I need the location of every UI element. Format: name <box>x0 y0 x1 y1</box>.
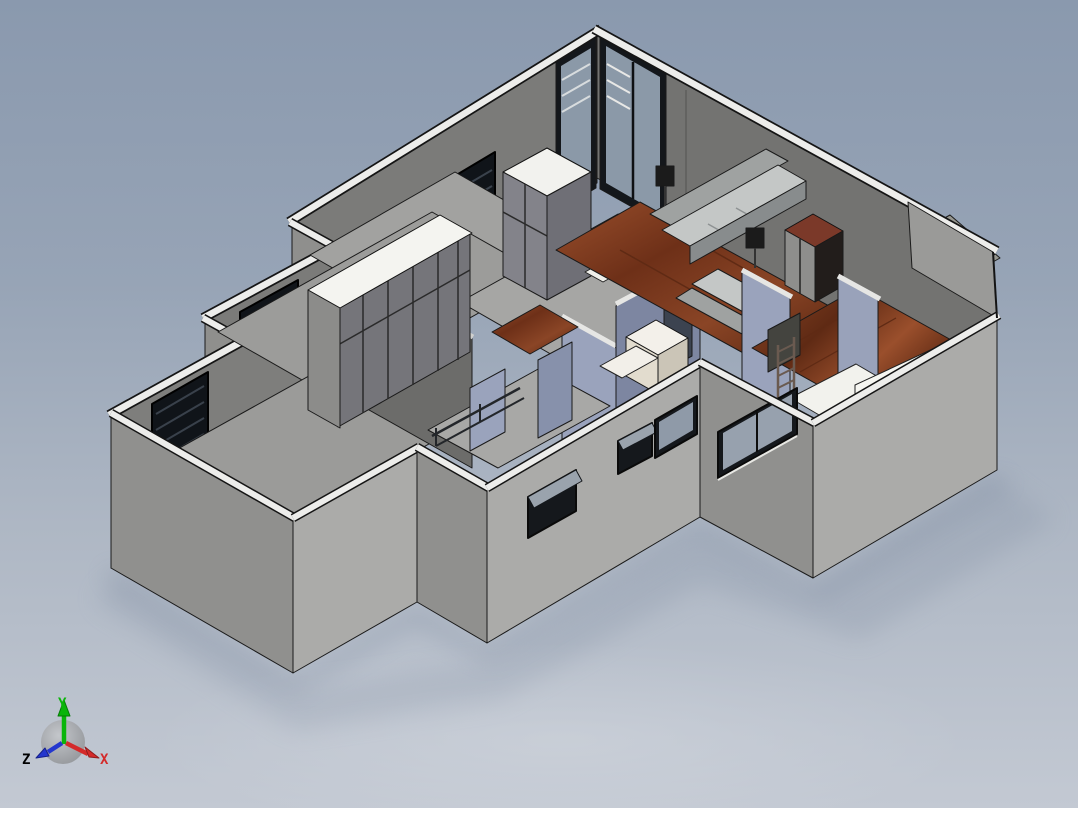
axis-x-label: X <box>100 752 109 768</box>
speaker-right <box>746 228 764 248</box>
cad-viewport: Y X Z <box>0 0 1078 808</box>
axis-x-arrow <box>85 747 99 758</box>
speaker-left <box>656 166 674 186</box>
axis-y-label: Y <box>58 696 67 712</box>
viewport-canvas[interactable]: Y X Z <box>0 0 1078 808</box>
closet-row-side <box>308 290 340 428</box>
axis-z-label: Z <box>22 752 30 768</box>
